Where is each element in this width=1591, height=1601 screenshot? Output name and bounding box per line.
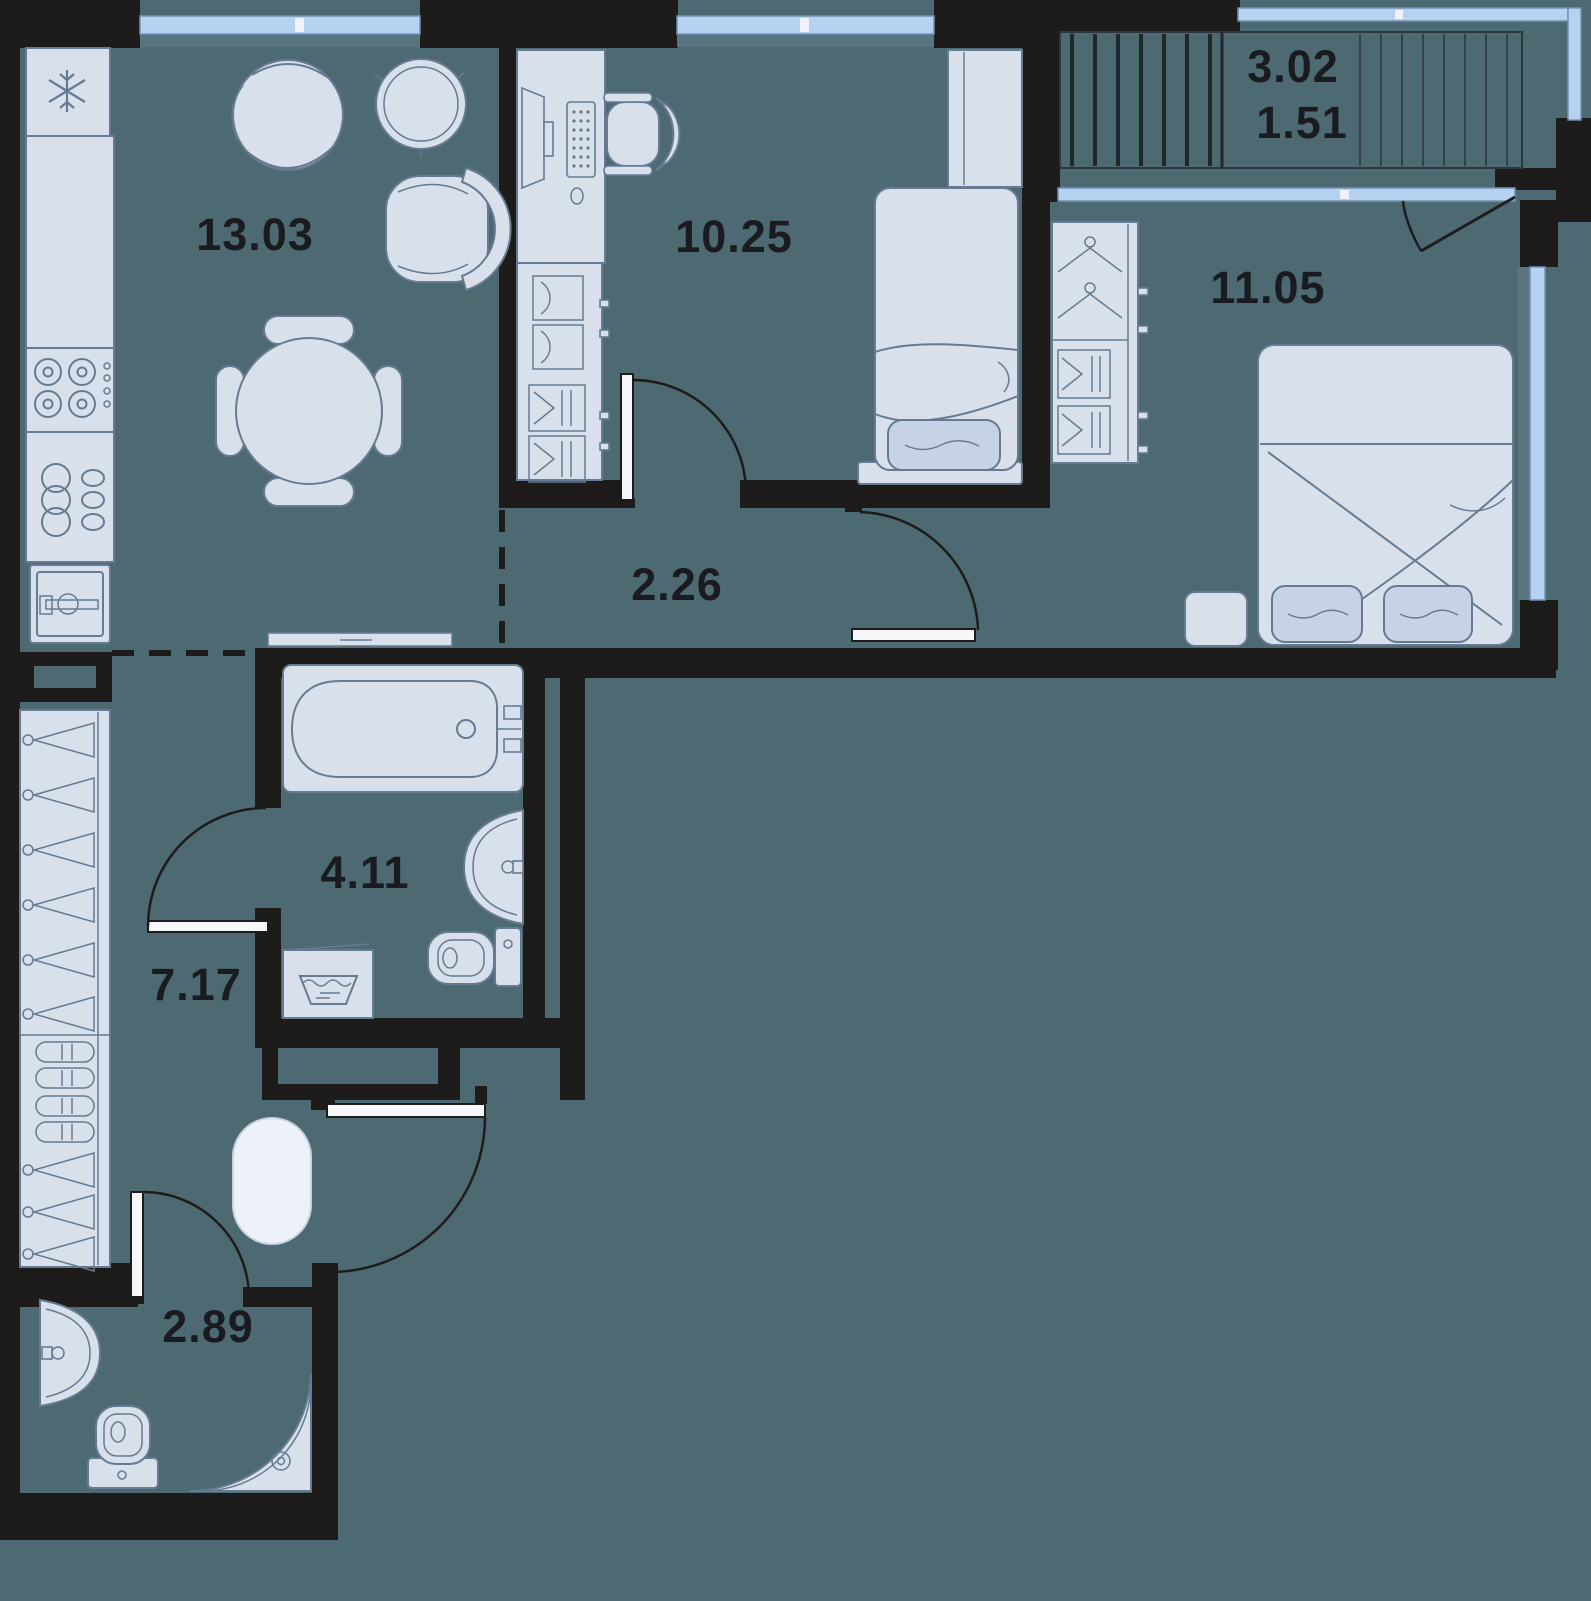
kitchen-sink-icon	[26, 432, 114, 562]
shower-toilet-icon	[88, 1406, 158, 1488]
round-chair-icon	[375, 59, 466, 158]
bedroom-window-recess	[1518, 267, 1530, 600]
label-corridor: 7.17	[150, 959, 242, 1010]
floor-plan-drawing: 13.03 10.25 11.05 2.26 4.11 7.17 2.89 3.…	[0, 0, 1591, 1601]
dining-table-icon	[216, 316, 402, 506]
label-bedroom: 11.05	[1210, 262, 1325, 313]
double-bed-icon	[1258, 345, 1513, 645]
shower-sink-icon	[40, 1300, 100, 1406]
bedroom-wardrobe	[1052, 222, 1148, 463]
label-shower-room: 2.89	[162, 1301, 254, 1352]
kitchen-counter	[26, 136, 114, 348]
bedroom-balcony-window	[1058, 188, 1515, 201]
corridor-closet	[20, 710, 110, 1271]
nightstand-icon	[1185, 592, 1247, 646]
bathroom-door	[148, 808, 268, 932]
balcony-door	[1403, 197, 1515, 251]
swivel-armchair-icon	[386, 168, 511, 290]
fridge-icon	[26, 48, 110, 136]
shower-cabin-icon	[190, 1374, 311, 1491]
label-bathroom: 4.11	[320, 847, 409, 898]
entry-rug	[233, 1118, 311, 1244]
label-kitchen-living: 13.03	[196, 209, 314, 260]
label-balcony-area-reduced: 1.51	[1256, 97, 1348, 148]
label-hallway: 2.26	[631, 559, 723, 610]
kitchen-bench	[268, 633, 452, 646]
single-bed-icon	[858, 188, 1022, 484]
bedroom-door	[852, 512, 978, 641]
bathroom-sink-icon	[464, 810, 523, 924]
washing-machine-icon	[283, 944, 373, 1018]
toilet-icon	[428, 928, 521, 986]
bathtub-icon	[283, 665, 523, 792]
office-cabinet	[948, 50, 1022, 187]
office-shelving	[517, 263, 609, 482]
armchair-icon	[232, 60, 343, 170]
oven-icon	[30, 565, 110, 643]
office-window-recess	[677, 34, 934, 47]
balcony-glazing-right	[1568, 8, 1581, 120]
label-office: 10.25	[675, 211, 793, 262]
bedroom-window	[1530, 267, 1545, 600]
entrance-door	[327, 1104, 485, 1272]
kitchen-window-recess	[140, 34, 420, 47]
desk-icon	[517, 50, 605, 263]
label-balcony-area: 3.02	[1247, 41, 1339, 92]
shower-room-door	[131, 1192, 249, 1298]
stove-icon	[26, 348, 114, 432]
office-chair-icon	[604, 93, 679, 175]
floor-plan: 13.03 10.25 11.05 2.26 4.11 7.17 2.89 3.…	[0, 0, 1591, 1601]
kitchen-window	[140, 16, 420, 34]
office-door	[621, 374, 746, 500]
